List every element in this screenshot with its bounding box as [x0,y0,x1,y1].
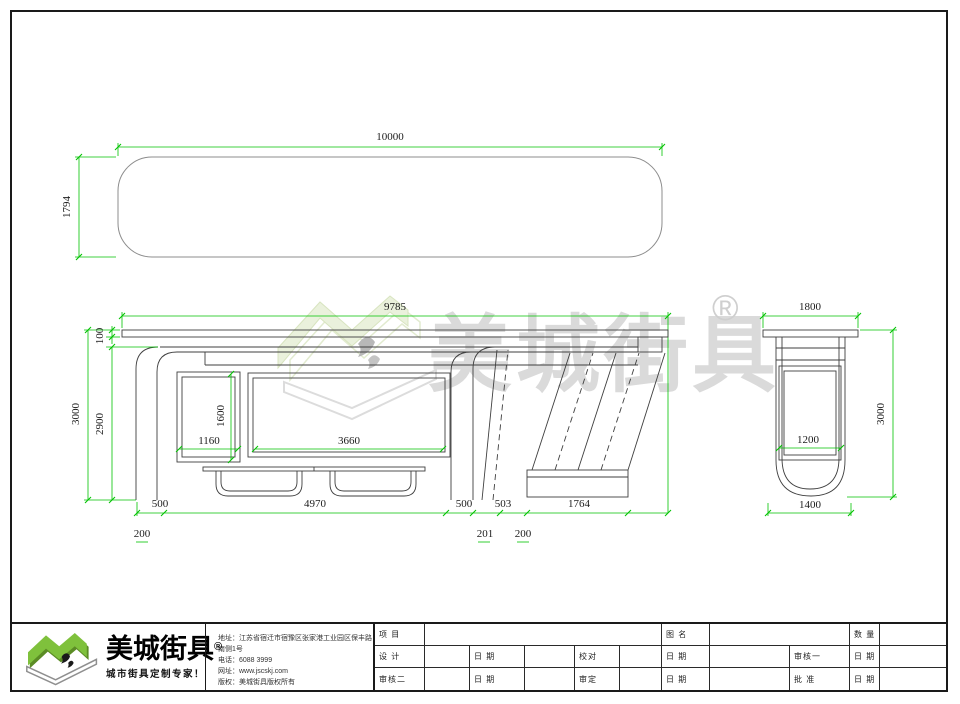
dim-side-panel-width: 1200 [797,434,820,446]
brand-watermark: 美城街具 ® [278,287,780,419]
dim-off-b: 201 [477,528,494,540]
field-design-value [425,646,470,668]
company-copyright: 版权：美城街具版权所有 [218,677,373,688]
field-date-value [710,646,790,668]
dim-front-width: 9785 [384,301,407,313]
field-review1: 审核一 [790,646,850,668]
company-address: 地址：江苏省宿迁市宿豫区张家港工业园区保丰路南侧1号 [218,633,373,655]
field-date-value [525,646,575,668]
dim-total-height: 3000 [70,403,82,426]
field-date: 日 期 [850,668,880,690]
dim-side-base-width: 1400 [799,499,822,511]
company-website: 网址：www.jscskj.com [218,666,373,677]
dim-top-depth: 1794 [61,196,73,219]
side-frame [776,337,845,496]
logo-brand: 美城街具 [106,634,214,664]
dim-inner-height: 2900 [94,413,106,436]
field-date-value [880,646,946,668]
title-block: 美城街具® 城市街具定制专家！ 地址：江苏省宿迁市宿豫区张家港工业园区保丰路南侧… [12,622,946,690]
dim-ad-panel-width: 3660 [338,435,361,447]
dim-off-a: 200 [134,528,151,540]
field-date: 日 期 [662,646,710,668]
dim-top-width: 10000 [376,131,404,143]
field-check: 校对 [575,646,620,668]
info-panel [177,372,240,462]
side-view: 1800 1200 3000 [760,301,897,516]
drawing-sheet: 美城街具 ® 10000 1794 9785 [0,0,960,704]
field-project: 项 目 [375,624,425,646]
dim-seg-d: 503 [495,498,512,510]
front-view: 9785 1600 [70,301,671,542]
field-check-value [620,646,662,668]
watermark-swoosh [284,370,436,419]
dim-seg-e: 1764 [568,498,591,510]
logo-m-icon [22,627,100,687]
field-date: 日 期 [470,646,525,668]
field-date-value [880,668,946,690]
field-quantity: 数 量 [850,624,880,646]
field-verify: 审定 [575,668,620,690]
dim-roof-thickness: 100 [94,327,106,344]
field-review2-value [425,668,470,690]
drawing-info-table: 项 目 图 名 数 量 设 计 日 期 校对 日 期 审核一 日 期 审核二 日… [373,624,946,690]
top-view: 10000 1794 [61,131,665,260]
field-approve: 批 准 [790,668,850,690]
left-column [136,347,158,500]
dim-panel-width: 1160 [198,435,220,447]
field-design: 设 计 [375,646,425,668]
logo-reg: ® [214,641,222,653]
field-date-value [710,668,790,690]
company-logo: 美城街具® 城市街具定制专家！ [12,624,205,690]
field-review2: 审核二 [375,668,425,690]
dim-side-height: 3000 [875,403,887,426]
field-drawing-name-value [710,624,850,646]
dim-panel-height: 1600 [215,405,227,428]
dim-seg-c: 500 [456,498,473,510]
bench-leg [216,471,302,496]
dim-off-c: 200 [515,528,532,540]
company-info: 地址：江苏省宿迁市宿豫区张家港工业园区保丰路南侧1号 电话：6088 3999 … [205,624,373,690]
roof-outline [118,157,662,257]
field-date: 日 期 [662,668,710,690]
field-date: 日 期 [850,646,880,668]
field-verify-value [620,668,662,690]
field-date-value [525,668,575,690]
dim-seg-a: 500 [152,498,169,510]
field-date: 日 期 [470,668,525,690]
field-drawing-name: 图 名 [662,624,710,646]
bench-leg [330,471,416,496]
field-project-value [425,624,662,646]
watermark-reg: ® [712,287,739,328]
slat-base [527,470,628,497]
field-quantity-value [880,624,946,646]
dim-seg-b: 4970 [304,498,327,510]
dim-side-roof-width: 1800 [799,301,822,313]
company-phone: 电话：6088 3999 [218,655,373,666]
cad-drawing: 美城街具 ® 10000 1794 9785 [0,0,960,704]
